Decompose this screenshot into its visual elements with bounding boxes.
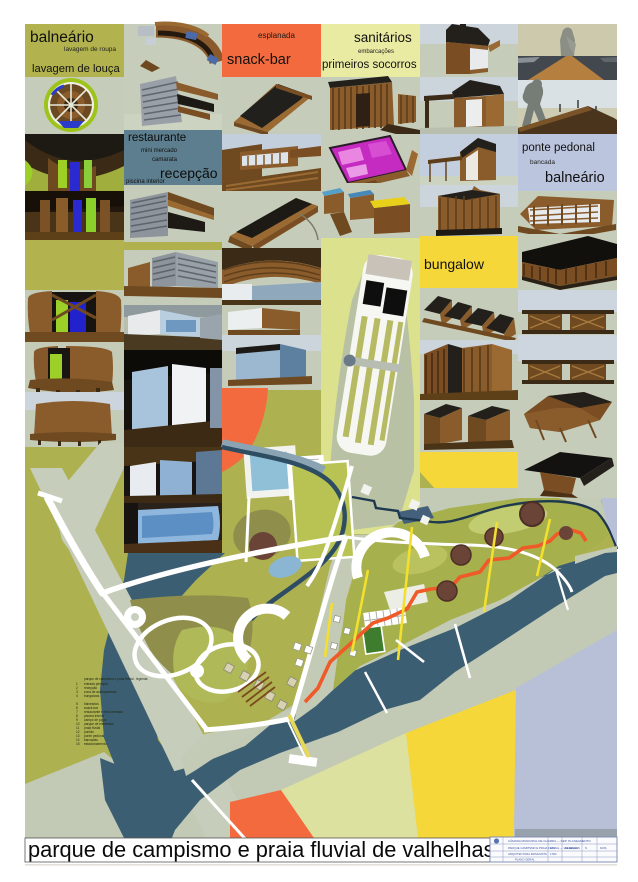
svg-text:CÂMARA MUNICIPAL DE GUARDA — D: CÂMARA MUNICIPAL DE GUARDA — DEP. PLANEA… <box>508 838 591 843</box>
svg-text:ARQUITECTURA PAISAGISTA: ARQUITECTURA PAISAGISTA <box>508 852 547 856</box>
svg-text:recepção: recepção <box>160 165 218 181</box>
svg-text:piscina interior: piscina interior <box>126 179 165 185</box>
svg-text:4: 4 <box>76 694 78 698</box>
svg-text:1:500: 1:500 <box>550 852 557 856</box>
svg-text:balneário: balneário <box>30 29 94 46</box>
svg-text:DATA: DATA <box>600 846 607 850</box>
svg-text:primeiros socorros: primeiros socorros <box>322 59 417 71</box>
svg-text:mini mercado: mini mercado <box>141 148 178 154</box>
svg-text:lavagem de roupa: lavagem de roupa <box>64 46 116 53</box>
svg-text:camarata: camarata <box>152 157 178 163</box>
svg-text:snack-bar: snack-bar <box>227 52 291 68</box>
svg-text:bancada: bancada <box>530 159 555 166</box>
svg-text:parque de campismo e praia flu: parque de campismo e praia fluvial . leg… <box>84 677 148 681</box>
svg-text:parque de campismo e praia flu: parque de campismo e praia fluvial de va… <box>28 837 495 862</box>
svg-text:balneário: balneário <box>545 170 605 186</box>
svg-text:PLANO GERAL: PLANO GERAL <box>515 858 535 862</box>
svg-text:15: 15 <box>76 742 80 746</box>
svg-text:bungalows: bungalows <box>84 694 100 698</box>
svg-text:ponte pedonal: ponte pedonal <box>522 142 595 154</box>
svg-text:N: N <box>585 846 587 850</box>
svg-text:restaurante: restaurante <box>128 132 186 144</box>
svg-text:ESC: ESC <box>550 846 555 850</box>
svg-text:sanitários: sanitários <box>354 30 412 45</box>
svg-text:estacionamento: estacionamento <box>84 742 107 746</box>
svg-text:DESENHO: DESENHO <box>565 846 578 850</box>
svg-text:bungalow: bungalow <box>424 256 485 272</box>
svg-text:esplanada: esplanada <box>258 31 295 40</box>
svg-text:embarcações: embarcações <box>358 49 394 55</box>
svg-text:lavagem de louça: lavagem de louça <box>32 63 120 75</box>
